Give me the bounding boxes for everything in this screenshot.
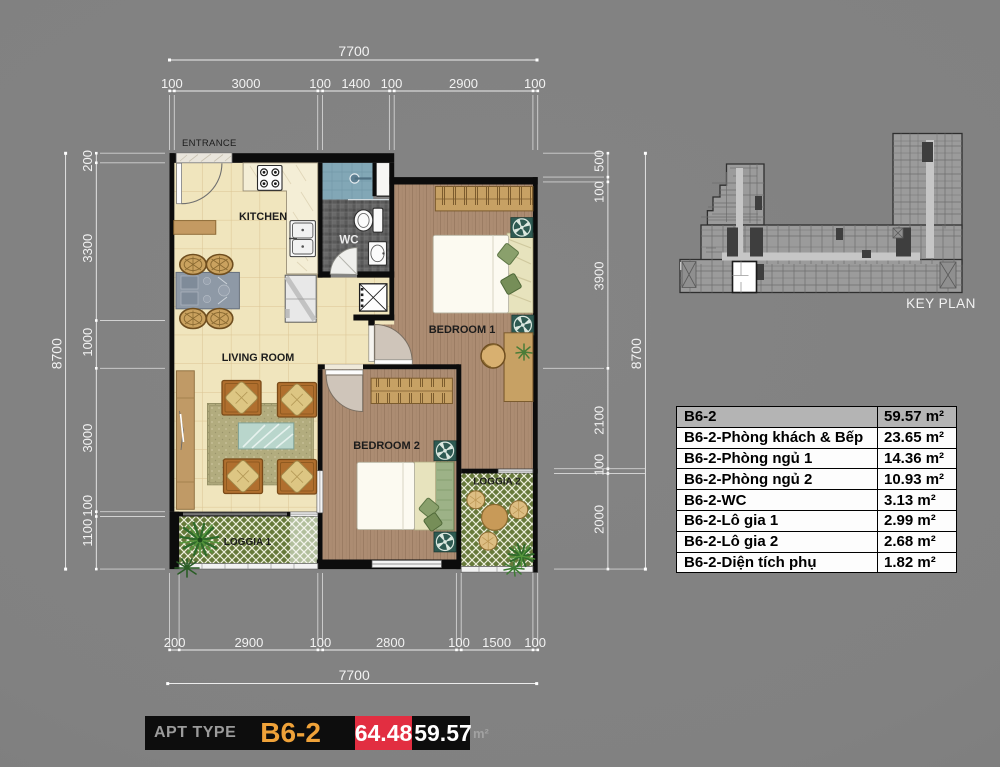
svg-text:ENTRANCE: ENTRANCE bbox=[182, 138, 237, 149]
svg-text:3300: 3300 bbox=[80, 234, 95, 263]
svg-text:500: 500 bbox=[592, 150, 607, 172]
svg-text:1100: 1100 bbox=[80, 519, 95, 547]
svg-text:2100: 2100 bbox=[592, 406, 607, 435]
svg-text:7700: 7700 bbox=[338, 43, 369, 59]
svg-text:1400: 1400 bbox=[341, 76, 370, 91]
svg-text:3000: 3000 bbox=[80, 424, 95, 453]
svg-text:KEY PLAN: KEY PLAN bbox=[906, 296, 976, 311]
svg-text:LIVING ROOM: LIVING ROOM bbox=[222, 352, 295, 364]
svg-text:8700: 8700 bbox=[49, 338, 65, 369]
svg-text:LOGGIA 2: LOGGIA 2 bbox=[473, 477, 521, 488]
svg-text:3900: 3900 bbox=[592, 262, 607, 291]
svg-text:KITCHEN: KITCHEN bbox=[239, 211, 287, 223]
svg-text:100: 100 bbox=[309, 76, 331, 91]
svg-text:100: 100 bbox=[381, 76, 403, 91]
svg-text:2800: 2800 bbox=[376, 635, 405, 650]
svg-text:100: 100 bbox=[448, 635, 470, 650]
svg-text:WC: WC bbox=[339, 235, 358, 247]
svg-text:100: 100 bbox=[592, 181, 607, 203]
svg-text:100: 100 bbox=[161, 76, 183, 91]
svg-text:2000: 2000 bbox=[592, 505, 607, 534]
svg-text:200: 200 bbox=[164, 635, 186, 650]
svg-text:BEDROOM 2: BEDROOM 2 bbox=[353, 440, 420, 452]
svg-text:100: 100 bbox=[524, 76, 546, 91]
svg-text:8700: 8700 bbox=[628, 338, 644, 369]
svg-text:2900: 2900 bbox=[449, 76, 478, 91]
svg-text:100: 100 bbox=[80, 495, 95, 517]
svg-text:2900: 2900 bbox=[234, 635, 263, 650]
svg-text:1500: 1500 bbox=[482, 635, 511, 650]
svg-text:BEDROOM 1: BEDROOM 1 bbox=[429, 324, 496, 336]
svg-text:200: 200 bbox=[80, 150, 95, 172]
svg-text:100: 100 bbox=[592, 454, 607, 476]
svg-text:3000: 3000 bbox=[232, 76, 261, 91]
svg-text:100: 100 bbox=[524, 635, 546, 650]
svg-text:1000: 1000 bbox=[80, 328, 95, 357]
svg-text:100: 100 bbox=[310, 635, 332, 650]
svg-text:7700: 7700 bbox=[339, 667, 370, 683]
svg-text:LOGGIA 1: LOGGIA 1 bbox=[224, 537, 272, 548]
